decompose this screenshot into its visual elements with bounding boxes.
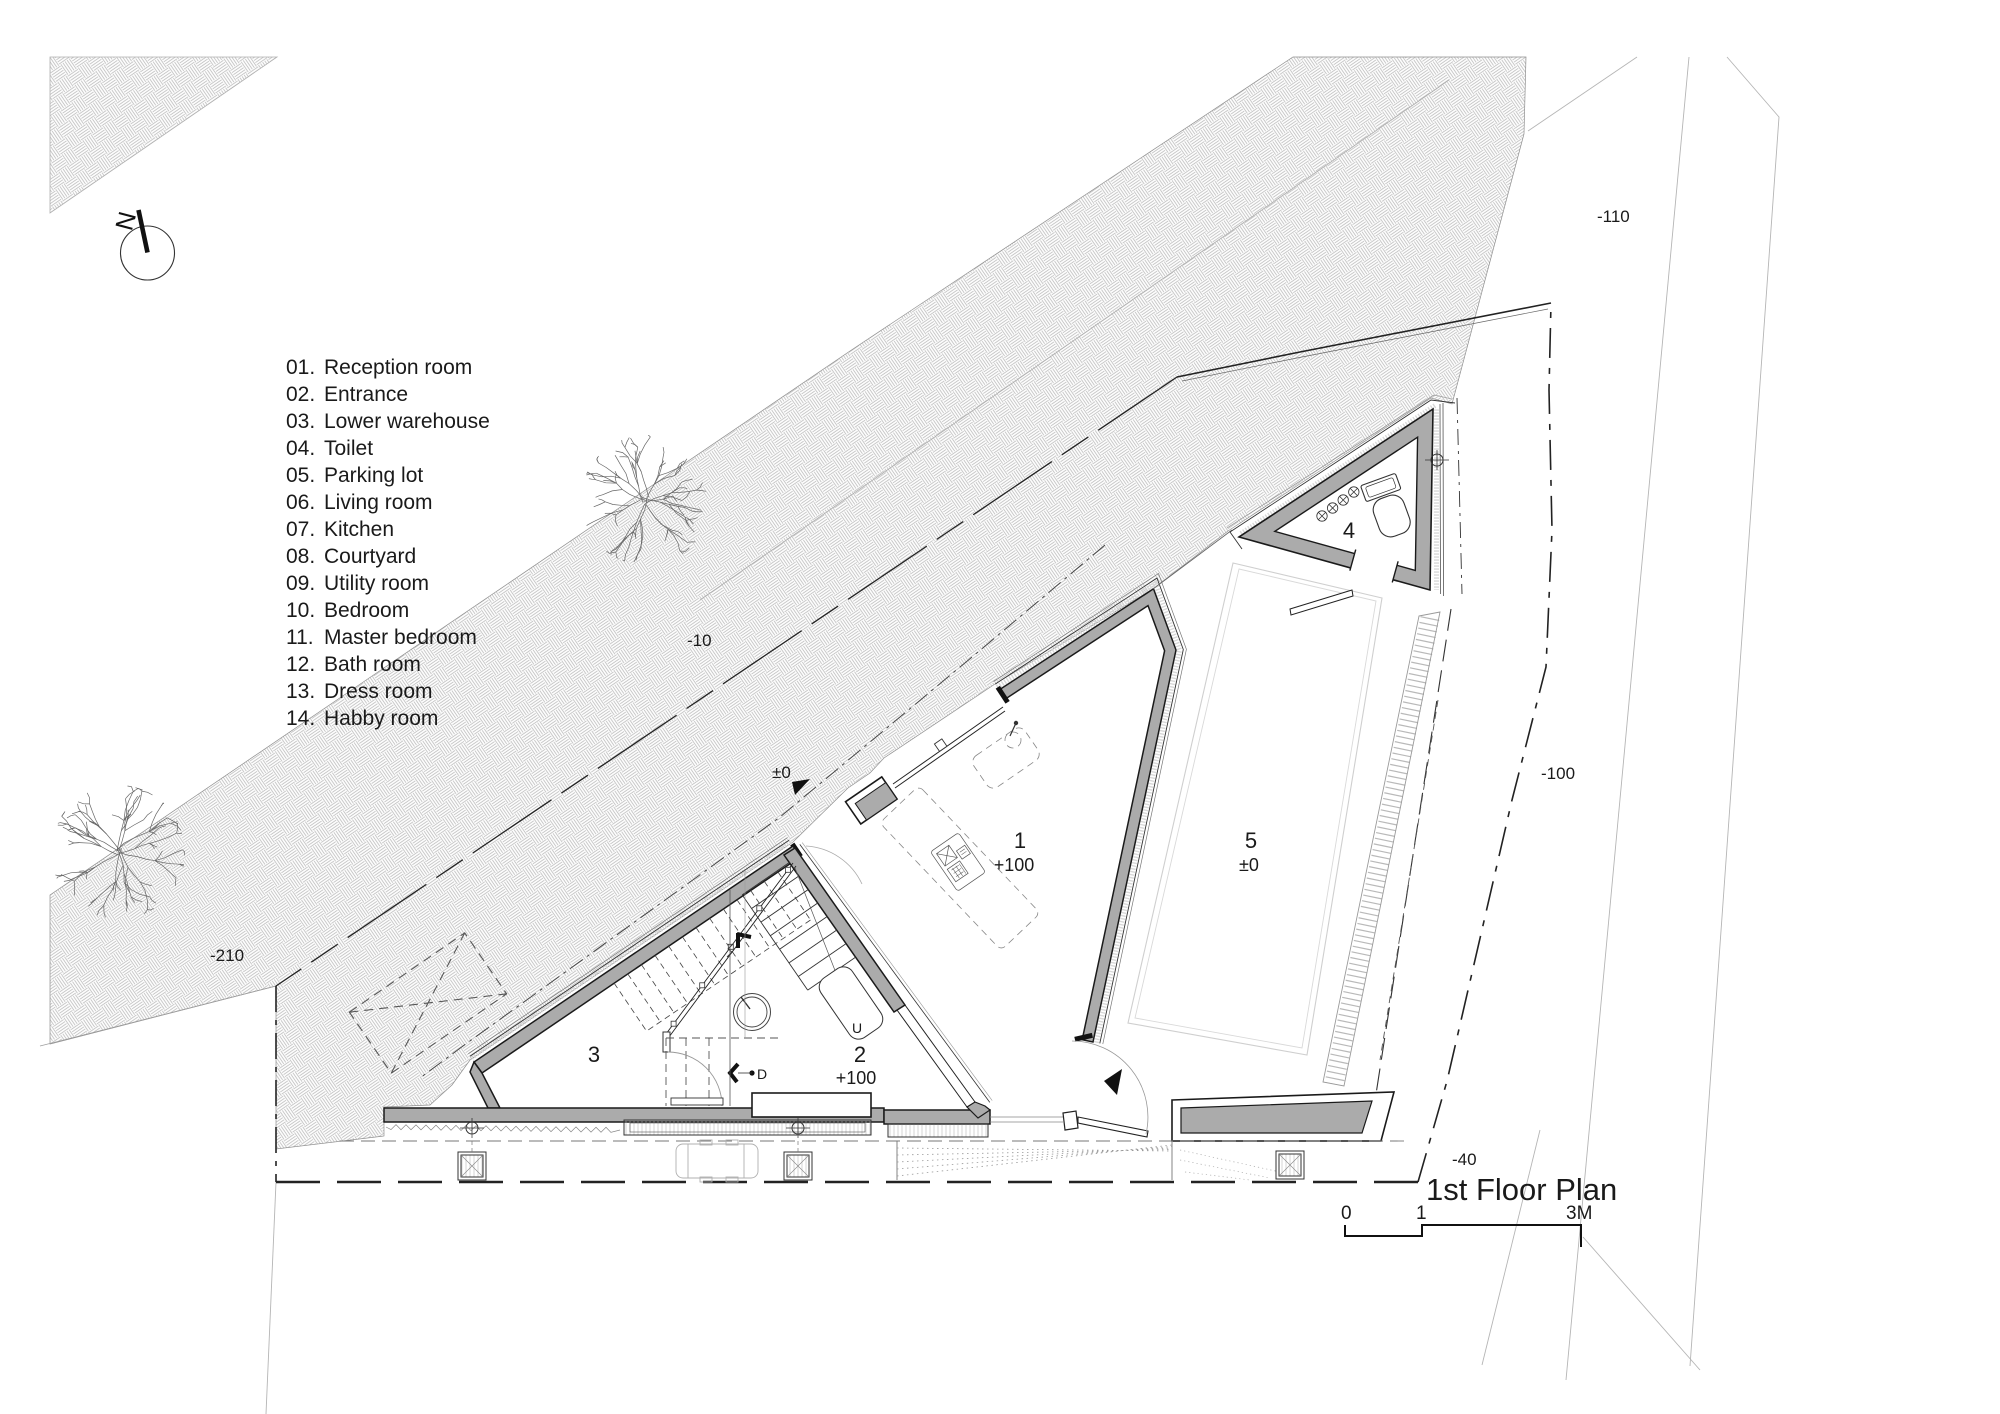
svg-text:11.: 11.: [286, 626, 314, 649]
svg-text:09.: 09.: [286, 572, 315, 595]
svg-text:-40: -40: [1452, 1150, 1477, 1169]
svg-text:Bath room: Bath room: [324, 653, 421, 676]
svg-text:Dress room: Dress room: [324, 680, 433, 703]
svg-text:Habby room: Habby room: [324, 707, 438, 730]
svg-text:Parking lot: Parking lot: [324, 464, 423, 487]
svg-text:5: 5: [1245, 828, 1257, 853]
svg-text:01.: 01.: [286, 356, 315, 379]
svg-text:Kitchen: Kitchen: [324, 518, 394, 541]
svg-text:Toilet: Toilet: [324, 437, 373, 460]
svg-text:Reception room: Reception room: [324, 356, 472, 379]
svg-text:Living room: Living room: [324, 491, 433, 514]
svg-text:13.: 13.: [286, 680, 315, 703]
svg-text:Utility room: Utility room: [324, 572, 429, 595]
svg-text:10.: 10.: [286, 599, 315, 622]
svg-text:+100: +100: [994, 855, 1035, 875]
svg-text:14.: 14.: [286, 707, 315, 730]
svg-text:05.: 05.: [286, 464, 315, 487]
svg-text:Master bedroom: Master bedroom: [324, 626, 477, 649]
svg-text:1st Floor Plan: 1st Floor Plan: [1426, 1172, 1617, 1207]
svg-text:08.: 08.: [286, 545, 315, 568]
svg-text:03.: 03.: [286, 410, 315, 433]
svg-text:±0: ±0: [1239, 855, 1259, 875]
svg-text:-10: -10: [687, 631, 712, 650]
svg-text:Bedroom: Bedroom: [324, 599, 409, 622]
svg-text:Lower warehouse: Lower warehouse: [324, 410, 490, 433]
svg-text:07.: 07.: [286, 518, 315, 541]
svg-text:2: 2: [854, 1042, 866, 1067]
svg-text:1: 1: [1416, 1203, 1427, 1224]
svg-text:Courtyard: Courtyard: [324, 545, 416, 568]
svg-text:D: D: [757, 1066, 767, 1082]
svg-text:-110: -110: [1597, 207, 1630, 226]
svg-text:12.: 12.: [286, 653, 315, 676]
svg-text:3M: 3M: [1566, 1203, 1592, 1224]
svg-text:02.: 02.: [286, 383, 315, 406]
svg-text:4: 4: [1343, 518, 1355, 543]
svg-text:-100: -100: [1541, 764, 1575, 783]
svg-text:04.: 04.: [286, 437, 315, 460]
svg-text:U: U: [852, 1020, 862, 1036]
svg-text:+100: +100: [836, 1068, 877, 1088]
svg-text:±0: ±0: [772, 763, 791, 782]
svg-text:1: 1: [1014, 828, 1026, 853]
svg-text:-210: -210: [210, 946, 244, 965]
svg-text:Entrance: Entrance: [324, 383, 408, 406]
svg-text:0: 0: [1341, 1203, 1352, 1224]
svg-text:3: 3: [588, 1042, 600, 1067]
svg-text:06.: 06.: [286, 491, 315, 514]
